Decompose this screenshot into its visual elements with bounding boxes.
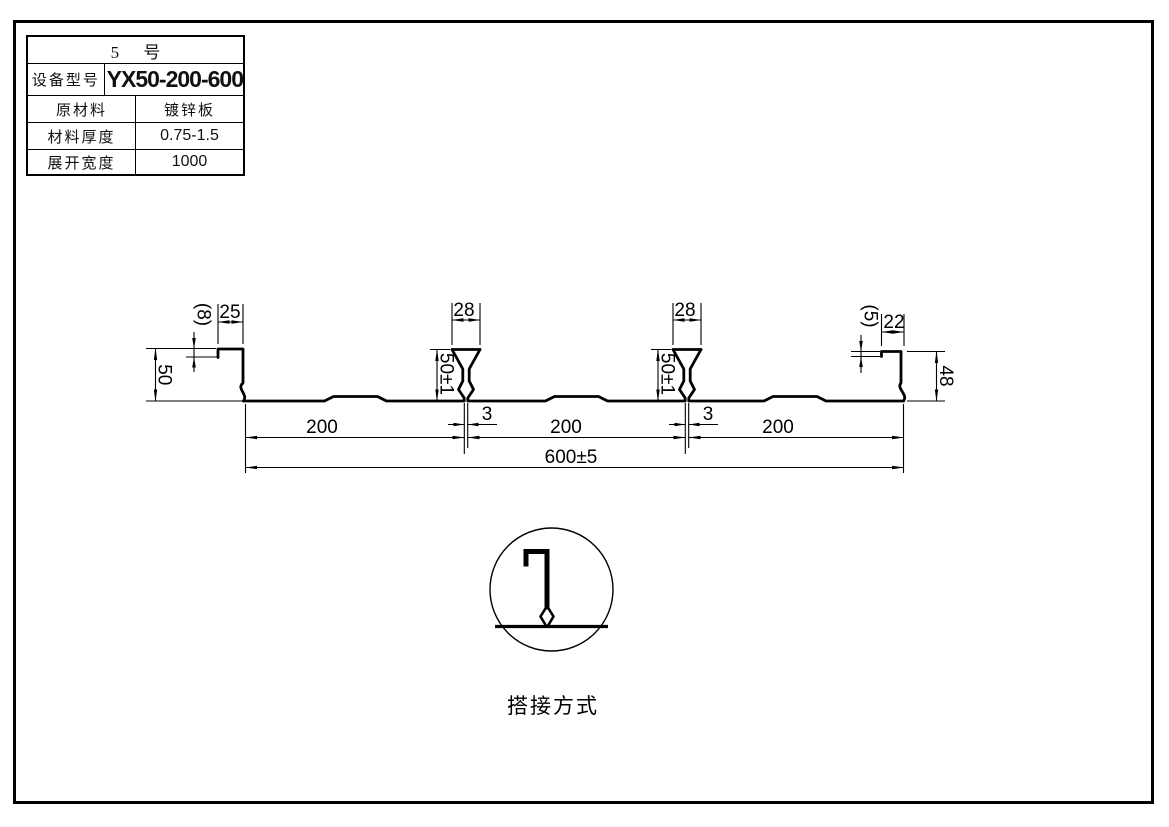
dim-rib2-stem-width: 3 xyxy=(703,404,714,425)
dim-right-height: 48 xyxy=(935,365,956,386)
arrow-right-step-top xyxy=(859,341,863,352)
rib1-right-face xyxy=(468,350,480,402)
arrow-rib1-stem-left xyxy=(454,423,465,427)
drawing-sheet: 5 号 设备型号 YX50-200-600 原材料 镀锌板 材料厚度 0.75-… xyxy=(0,0,1169,827)
detail-hook xyxy=(526,552,547,608)
dim-rib1-stem-width: 3 xyxy=(482,404,493,425)
dim-left-lip-width: 25 xyxy=(219,302,240,323)
dim-pitch2: 200 xyxy=(550,417,582,438)
arrow-right-step-bottom xyxy=(859,357,863,368)
profile-web-1 xyxy=(244,397,463,402)
dim-pitch3: 200 xyxy=(762,417,794,438)
arrow-left-step-top xyxy=(192,338,196,349)
dim-left-step: (8) xyxy=(193,303,214,326)
arrow-rib2-stem-right xyxy=(689,423,700,427)
dim-pitch1: 200 xyxy=(306,417,338,438)
profile-web-2 xyxy=(469,397,684,402)
profile-left-edge xyxy=(218,349,245,401)
arrow-rib1-stem-right xyxy=(468,423,479,427)
profile-web-3 xyxy=(690,397,903,402)
detail-caption: 搭接方式 xyxy=(507,694,599,718)
arrow-left-step-bottom xyxy=(192,357,196,368)
profile-right-edge xyxy=(882,352,905,402)
dim-rib2-height: 50±1 xyxy=(657,353,678,395)
dim-right-step: (5) xyxy=(860,304,881,327)
dim-rib2-top-width: 28 xyxy=(674,300,695,321)
detail-seam-diamond-right xyxy=(547,606,554,627)
arrow-rib2-stem-left xyxy=(675,423,686,427)
dim-rib1-top-width: 28 xyxy=(453,300,474,321)
rib2-right-face xyxy=(689,350,701,402)
lap-joint-detail: 搭接方式 xyxy=(490,528,613,718)
detail-seam-diamond-left xyxy=(541,606,548,627)
cross-section-profile xyxy=(218,349,905,401)
profile-drawing: 50 (8) 25 28 50±1 xyxy=(0,0,1169,827)
dim-left-height: 50 xyxy=(154,364,175,385)
dim-right-lip-width: 22 xyxy=(883,312,904,333)
dim-overall-width: 600±5 xyxy=(545,447,598,468)
detail-circle xyxy=(490,528,613,651)
dim-rib1-height: 50±1 xyxy=(436,353,457,395)
dimensions: 50 (8) 25 28 50±1 xyxy=(146,300,956,473)
